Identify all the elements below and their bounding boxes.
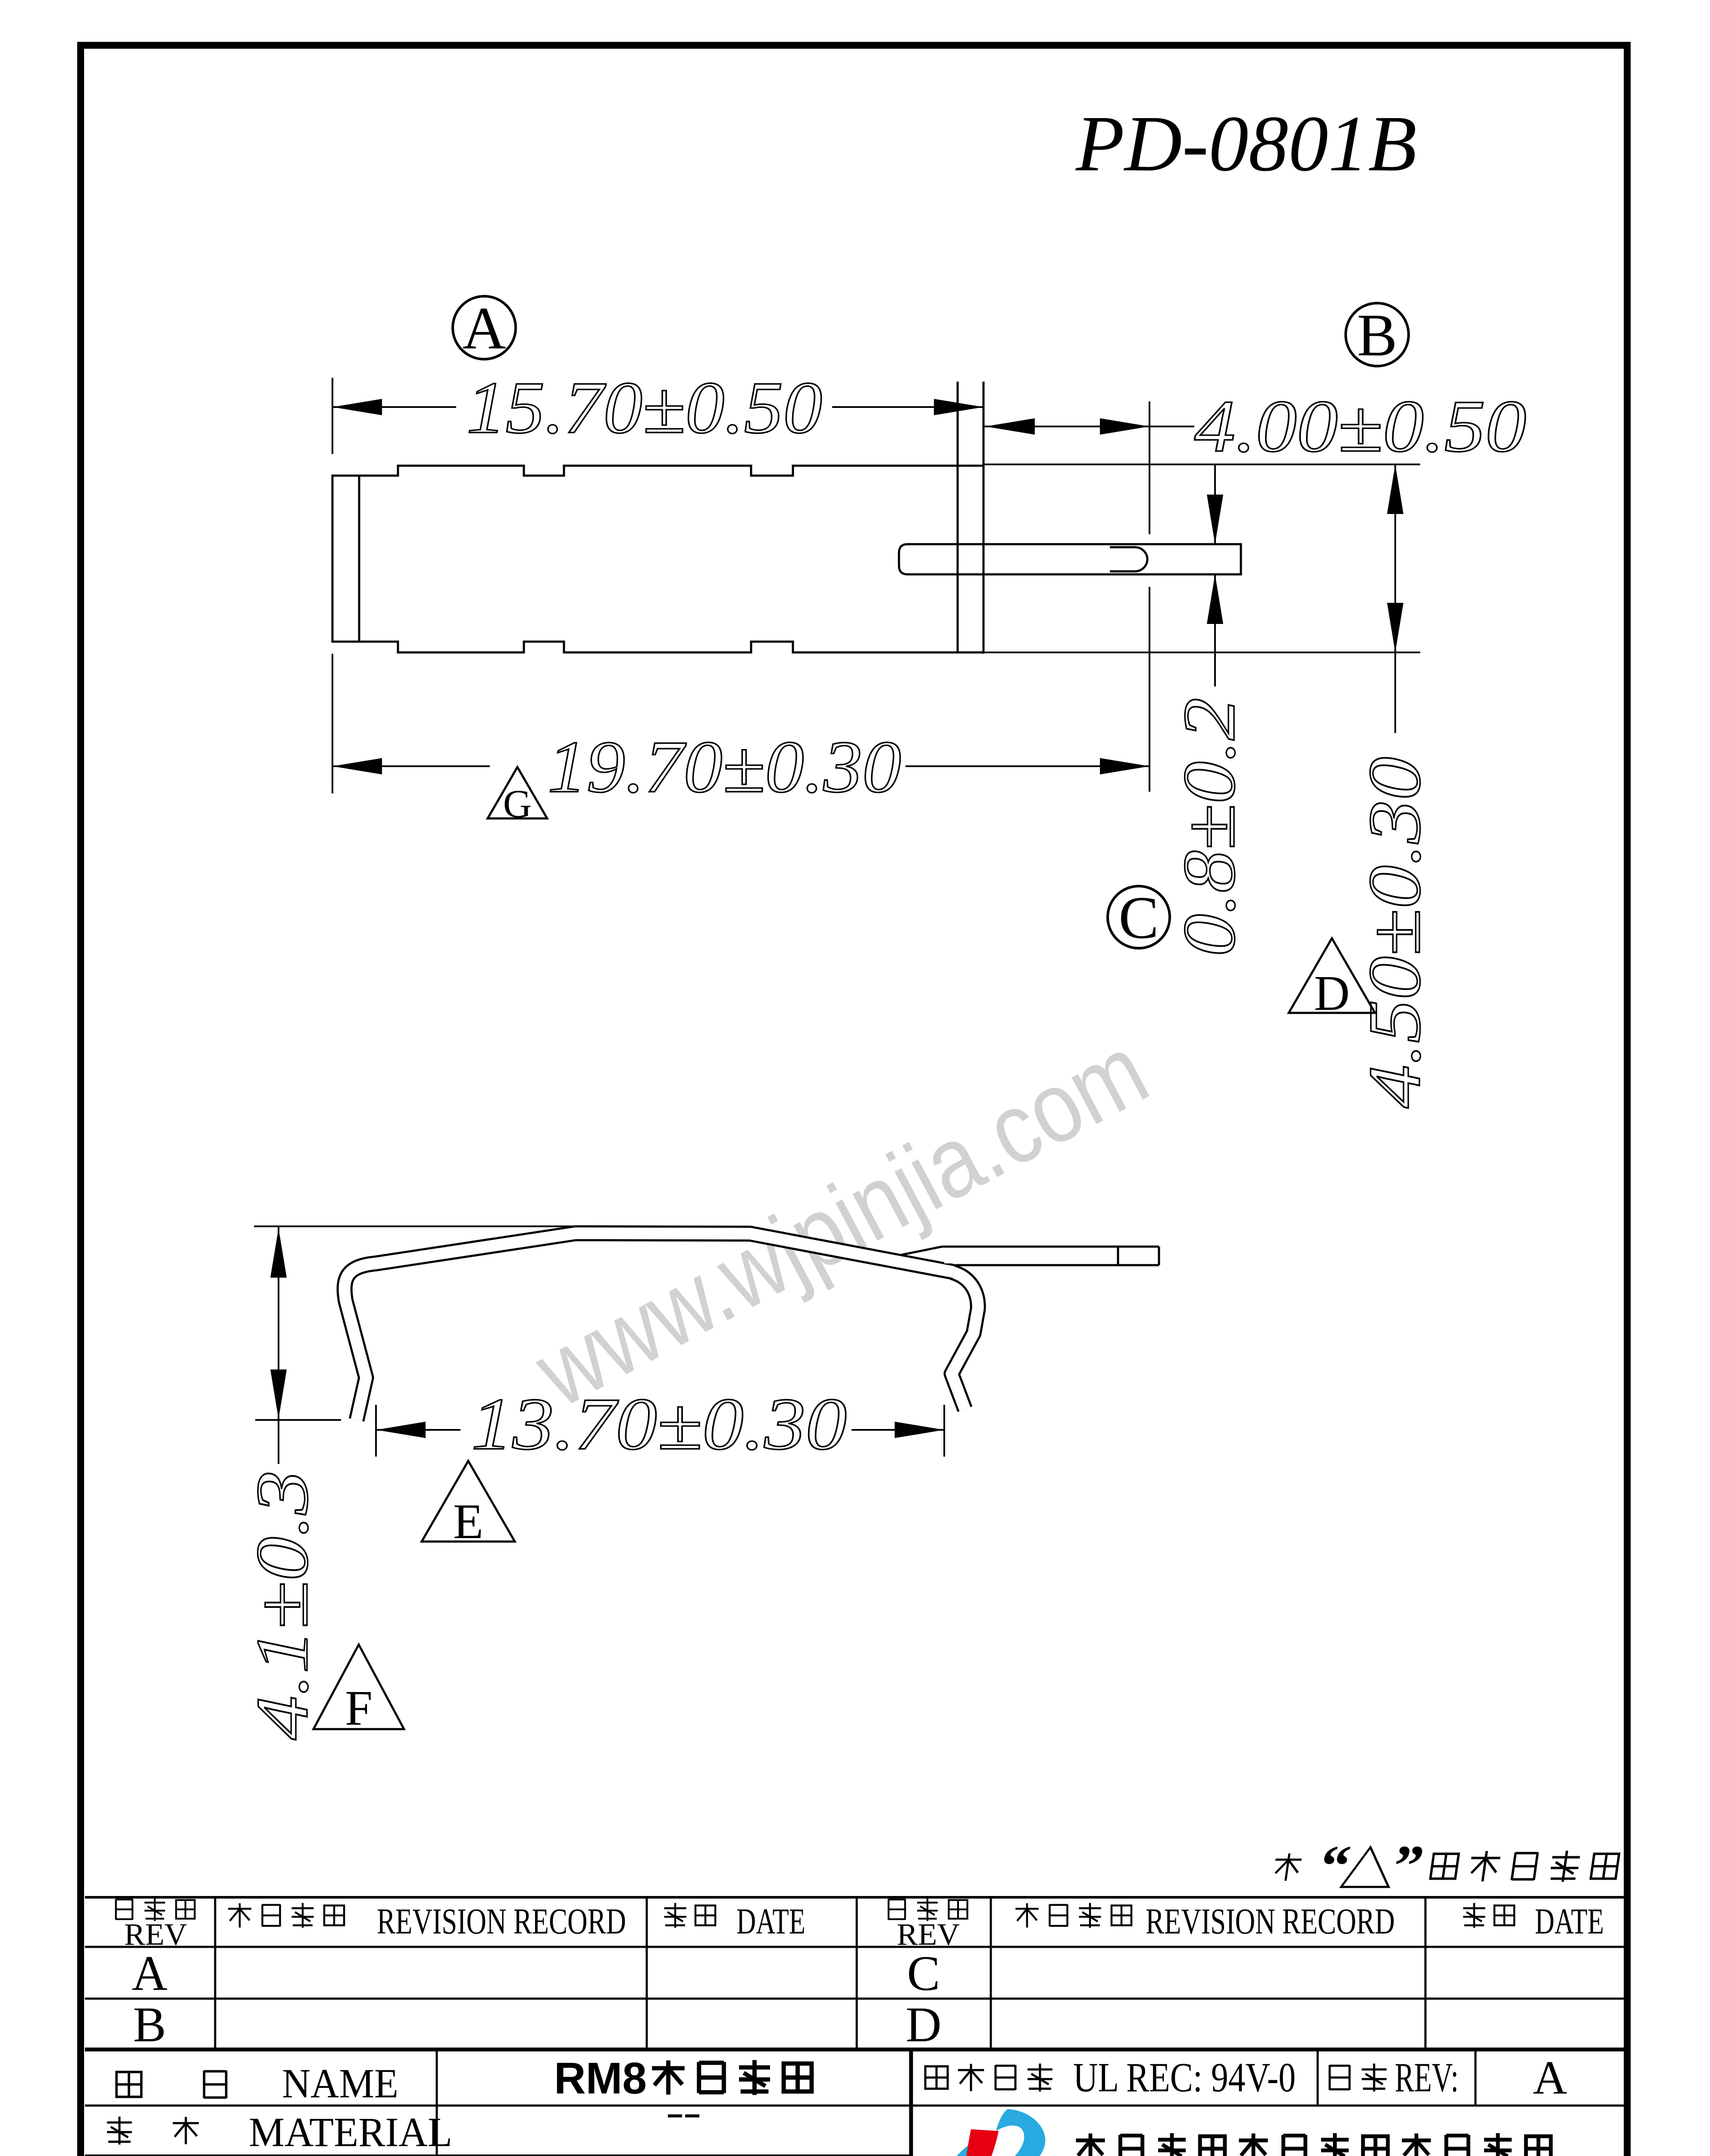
svg-text:4.00±0.50: 4.00±0.50 [1194, 385, 1526, 467]
svg-text:NAME: NAME [282, 2060, 398, 2106]
svg-text:4.50±0.30: 4.50±0.30 [1354, 757, 1436, 1108]
svg-text:G: G [503, 782, 532, 826]
svg-text:0.8±0.2: 0.8±0.2 [1168, 698, 1250, 956]
svg-text:PD-0801B: PD-0801B [1075, 100, 1417, 188]
svg-text:DATE: DATE [1535, 1901, 1604, 1942]
svg-text:D: D [905, 1997, 941, 2052]
svg-text:A: A [1533, 2051, 1567, 2104]
svg-text:C: C [1118, 884, 1159, 951]
svg-text:MATERIAL: MATERIAL [249, 2109, 452, 2155]
svg-text:F: F [345, 1681, 373, 1736]
svg-text:B: B [133, 1997, 166, 2052]
svg-text:C: C [907, 1946, 940, 2001]
svg-text:DATE: DATE [736, 1901, 805, 1942]
svg-text:15.70±0.50: 15.70±0.50 [467, 367, 822, 449]
svg-text:4.1±0.3: 4.1±0.3 [241, 1470, 323, 1740]
svg-text:A: A [132, 1946, 167, 2001]
svg-text:19.70±0.30: 19.70±0.30 [548, 726, 901, 808]
svg-text:D: D [1314, 966, 1350, 1021]
svg-text:RM8: RM8 [554, 2053, 647, 2103]
svg-text:13.70±0.30: 13.70±0.30 [471, 1383, 847, 1465]
svg-text:B: B [1357, 302, 1397, 369]
svg-text:E: E [453, 1494, 483, 1549]
svg-text:UL REC: 94V-0: UL REC: 94V-0 [1073, 2054, 1296, 2100]
svg-text:REV:: REV: [1395, 2054, 1459, 2100]
svg-text:REVISION RECORD: REVISION RECORD [377, 1901, 626, 1942]
svg-text:A: A [462, 295, 506, 362]
svg-text:REVISION RECORD: REVISION RECORD [1146, 1901, 1395, 1942]
